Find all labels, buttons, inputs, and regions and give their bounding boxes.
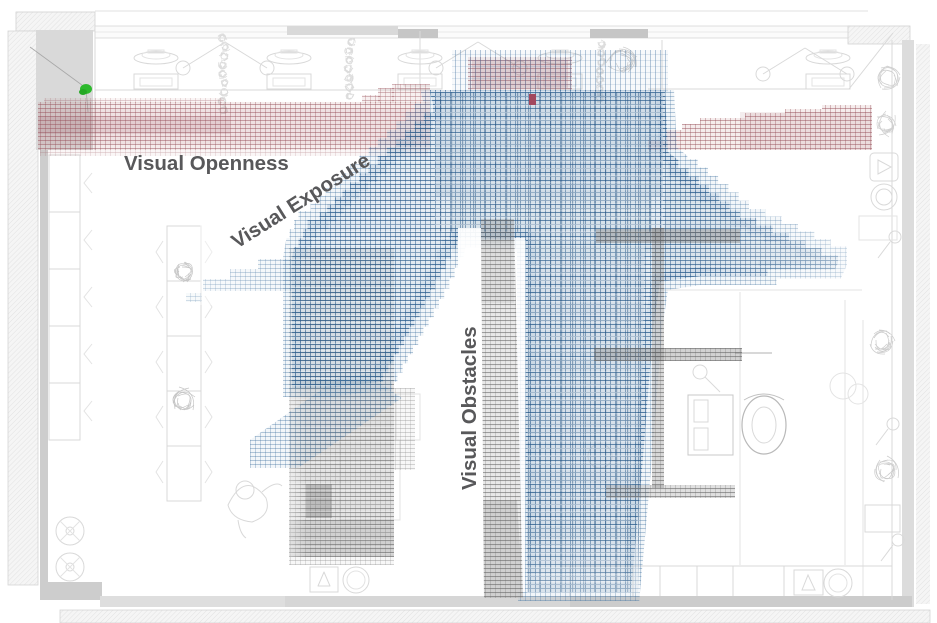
svg-text:Visual Obstacles: Visual Obstacles bbox=[458, 326, 481, 490]
svg-text:Visual Openness: Visual Openness bbox=[124, 152, 289, 175]
